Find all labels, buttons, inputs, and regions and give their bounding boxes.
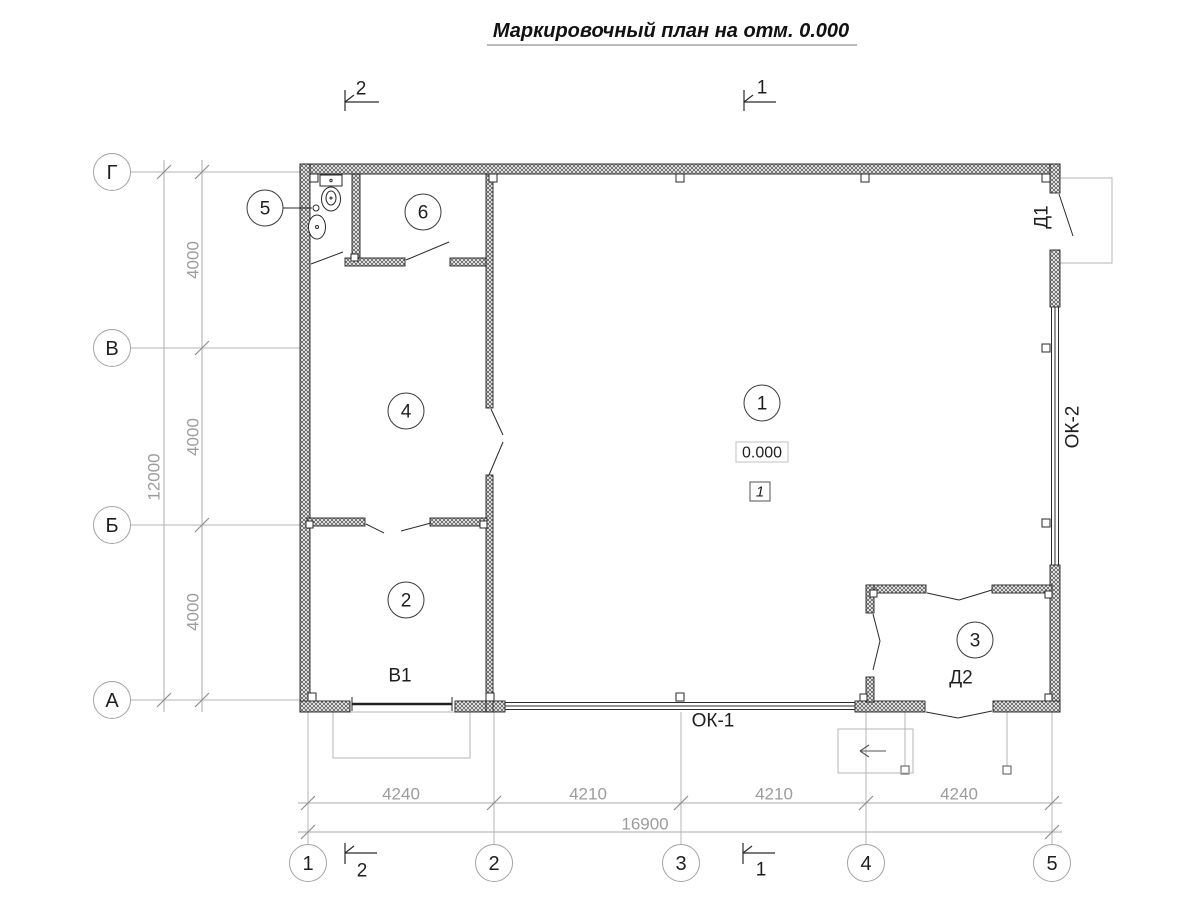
section-arrow-head — [743, 846, 752, 853]
wall-exterior-right — [1050, 250, 1060, 307]
axis-extension-lines — [130, 172, 1052, 845]
pilaster-square — [676, 174, 684, 182]
axis-label: 3 — [675, 853, 686, 875]
pilaster-square — [1042, 344, 1050, 352]
door-swing-d2 — [958, 711, 992, 718]
wall-wc-partition — [352, 174, 360, 262]
pilaster-square — [870, 590, 877, 597]
wall-room6-bottom — [450, 258, 487, 266]
axis-label: В — [105, 338, 118, 360]
dim-label-bottom-segment: 4210 — [755, 785, 793, 804]
pilaster-square — [351, 254, 358, 261]
porch-column-square — [1003, 766, 1011, 774]
pilaster-square — [480, 521, 487, 528]
dim-label-left-segment: 4000 — [184, 418, 203, 456]
wall-vestibule-left — [866, 585, 874, 613]
door-swing-vestibule-top — [959, 590, 992, 600]
pilaster-square — [306, 521, 313, 528]
label-door-d1: Д1 — [1032, 205, 1053, 228]
walls — [300, 164, 1060, 712]
axis-label: 1 — [302, 853, 313, 875]
floor-type-value: 1 — [756, 484, 764, 501]
elevation-value: 0.000 — [742, 445, 782, 462]
section-mark-top-2: 2 — [345, 79, 379, 112]
gate-v1 — [352, 697, 452, 711]
label-window-ok1: ОК-1 — [692, 711, 735, 732]
axis-label: 2 — [488, 853, 499, 875]
bottom-dimension-chain: 4240 4210 4210 4240 16900 — [298, 785, 1062, 840]
wall-interior-line2 — [486, 475, 493, 712]
section-label: 2 — [356, 79, 367, 100]
col-axis-bubbles: 1 2 3 4 5 — [290, 845, 1071, 882]
page-title: Маркировочный план на отм. 0.000 — [493, 20, 849, 42]
exterior-platforms — [333, 178, 1112, 774]
room5-leader-dot — [313, 205, 319, 211]
sink-drain — [316, 226, 319, 229]
wall-vestibule-top — [992, 585, 1052, 593]
pilaster-square — [489, 174, 497, 182]
door-swing-vestibule-left — [873, 614, 880, 641]
axis-label: 4 — [860, 853, 871, 875]
toilet-button — [330, 179, 332, 181]
dim-label-left-total: 12000 — [145, 453, 164, 500]
door-swing-d1 — [1059, 194, 1073, 236]
title-block: Маркировочный план на отм. 0.000 — [487, 20, 857, 45]
axis-label: Г — [107, 162, 118, 184]
pilaster-square — [861, 174, 869, 182]
room-number: 4 — [401, 402, 412, 423]
level-marks: 0.000 1 — [736, 442, 788, 501]
pilaster-square — [860, 694, 867, 701]
wall-interior-row-b — [430, 518, 487, 526]
section-label: 2 — [357, 861, 368, 882]
label-gate-v1: В1 — [388, 666, 411, 687]
section-arrow-head — [345, 95, 354, 102]
pilaster-square — [486, 693, 494, 701]
section-mark-bottom-2: 2 — [345, 843, 377, 882]
pilaster-square — [1042, 519, 1050, 527]
ramp-v1-outline — [333, 712, 470, 758]
row-axis-bubbles: Г В Б А — [94, 154, 131, 719]
label-door-d2: Д2 — [949, 668, 972, 689]
pilaster-square — [308, 693, 316, 701]
section-label: 1 — [757, 78, 768, 99]
wall-exterior-top — [300, 164, 1060, 174]
wall-exterior-right — [1050, 164, 1060, 193]
wall-exterior-bottom — [855, 701, 925, 712]
pilasters — [306, 174, 1052, 701]
pilaster-square — [1042, 174, 1050, 182]
pilaster-square — [310, 174, 318, 182]
room-number: 3 — [970, 631, 981, 652]
door-swing-d2 — [926, 712, 958, 718]
section-mark-bottom-1: 1 — [743, 843, 775, 881]
dim-label-left-segment: 4000 — [184, 241, 203, 279]
section-arrow-head — [744, 95, 753, 102]
door-swing-row-b — [366, 524, 384, 533]
wall-exterior-bottom — [300, 701, 350, 712]
axis-label: 5 — [1046, 853, 1057, 875]
wall-interior-line2 — [486, 174, 493, 408]
entrance-arrow-head — [860, 745, 869, 751]
wall-interior-row-b — [307, 518, 365, 526]
door-swing-room6 — [406, 242, 449, 260]
dim-label-bottom-segment: 4240 — [940, 785, 978, 804]
door-swing-vestibule-top — [927, 593, 959, 600]
floor-plan-drawing: Маркировочный план на отм. 0.000 2 1 2 1 — [0, 0, 1200, 900]
toilet-drain — [330, 197, 332, 199]
pilaster-square — [676, 693, 684, 701]
dim-label-bottom-segment: 4240 — [382, 785, 420, 804]
label-window-ok2: ОК-2 — [1063, 406, 1084, 449]
dim-label-bottom-total: 16900 — [621, 815, 668, 834]
plan-svg: Маркировочный план на отм. 0.000 2 1 2 1 — [0, 0, 1200, 900]
wall-exterior-bottom — [993, 701, 1060, 712]
door-swing-vestibule-left — [873, 641, 880, 670]
section-mark-top-1: 1 — [744, 78, 776, 112]
room-number: 6 — [418, 203, 429, 224]
pilaster-square — [1045, 591, 1052, 598]
pilaster-square — [1045, 694, 1052, 701]
door-swing-room4 — [489, 442, 503, 475]
dim-label-left-segment: 4000 — [184, 593, 203, 631]
left-dimension-chain: 4000 4000 4000 12000 — [145, 160, 210, 712]
room-number: 1 — [757, 394, 768, 415]
dim-label-bottom-segment: 4210 — [569, 785, 607, 804]
wall-exterior-left — [300, 164, 310, 712]
axis-label: Б — [105, 515, 118, 537]
door-swing-row-b — [401, 523, 431, 531]
room-number: 5 — [260, 199, 271, 220]
entrance-arrow-head — [860, 751, 869, 757]
section-arrow-head — [345, 846, 354, 853]
door-swing-wc — [311, 252, 343, 264]
section-label: 1 — [756, 860, 767, 881]
room-number: 2 — [401, 591, 412, 612]
axis-label: А — [105, 690, 119, 712]
wall-exterior-bottom — [455, 701, 505, 712]
door-swing-room4 — [491, 409, 503, 435]
